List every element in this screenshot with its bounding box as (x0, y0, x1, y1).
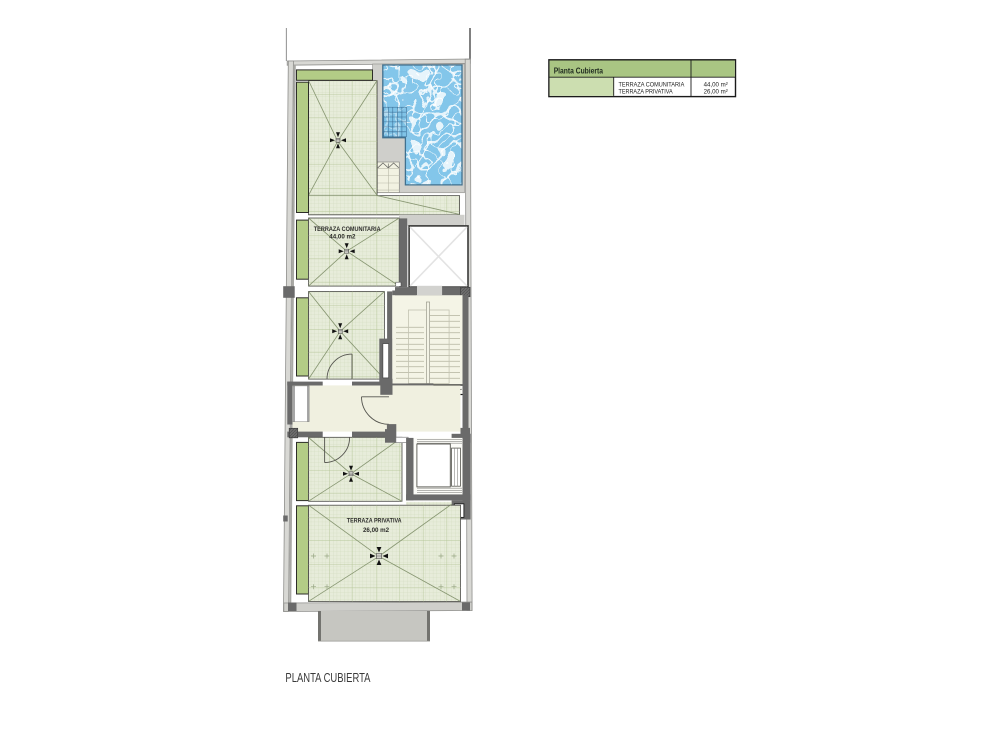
svg-text:26,00 m²: 26,00 m² (704, 89, 728, 96)
svg-text:TERRAZA PRIVATIVA: TERRAZA PRIVATIVA (619, 89, 674, 96)
svg-text:PLANTA CUBIERTA: PLANTA CUBIERTA (285, 670, 370, 685)
svg-text:Planta Cubierta: Planta Cubierta (554, 66, 604, 75)
